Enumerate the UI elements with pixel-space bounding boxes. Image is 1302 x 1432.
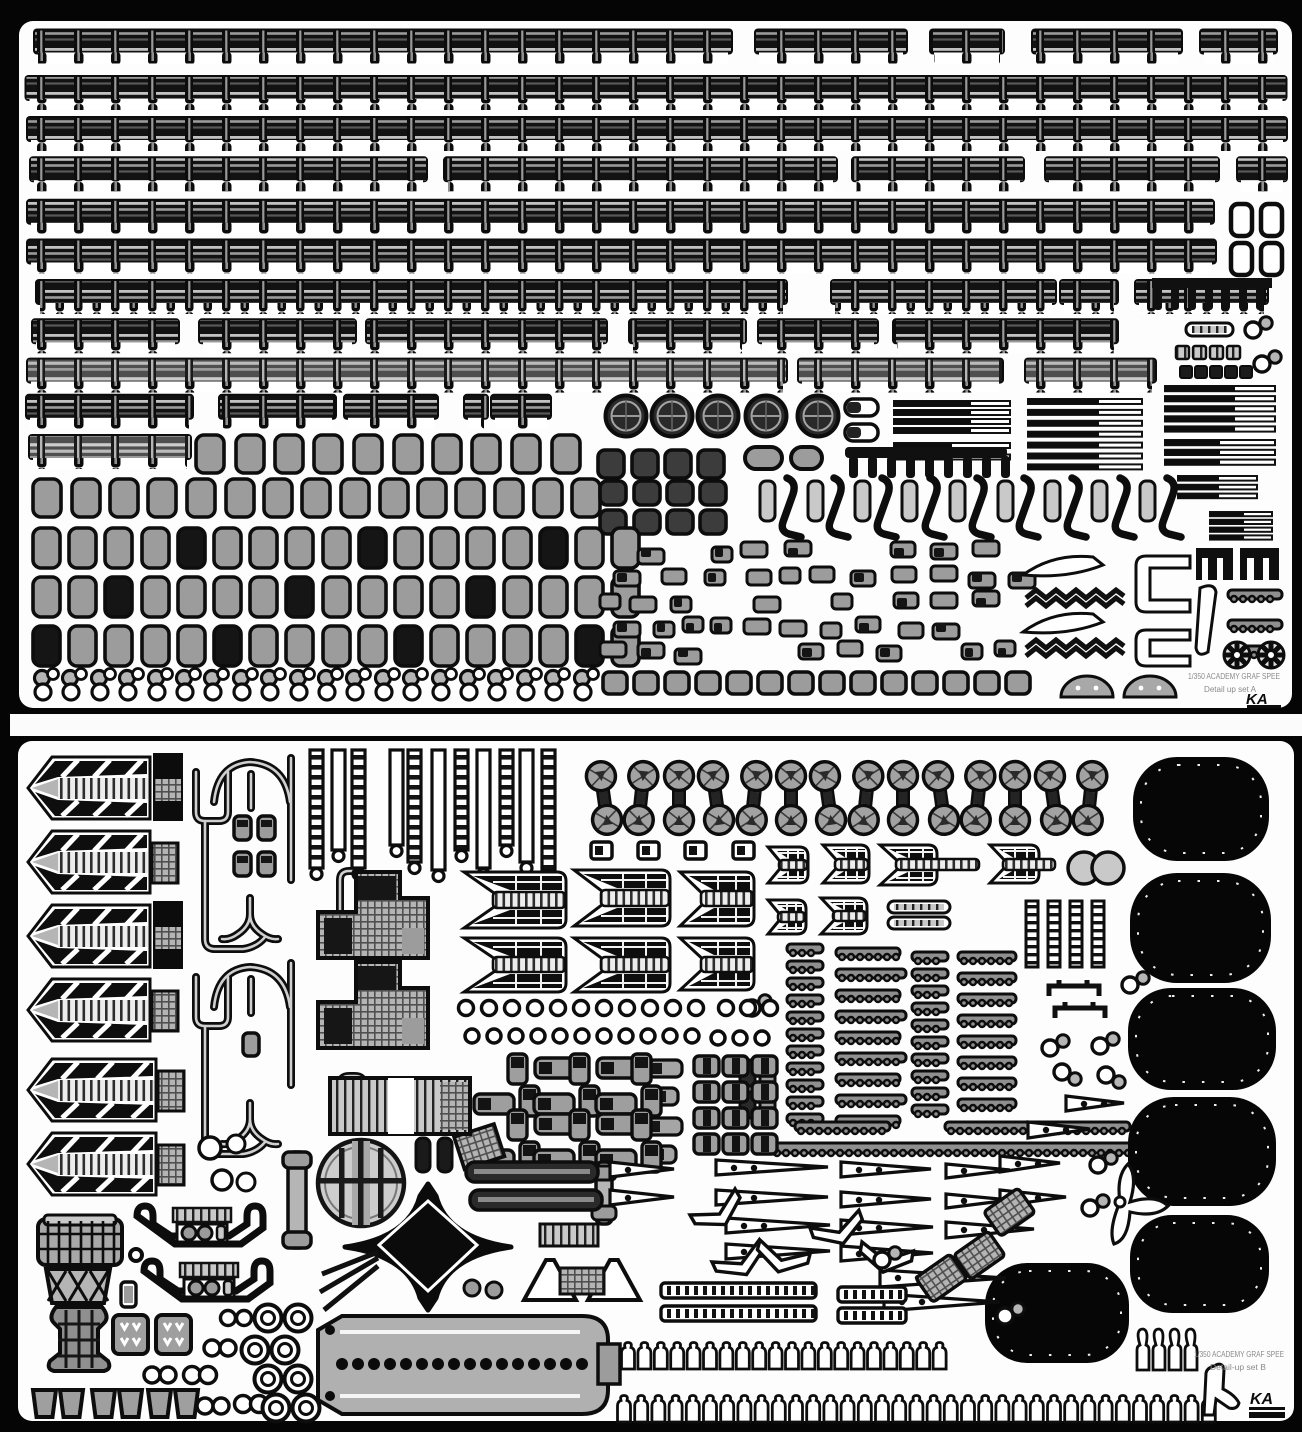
svg-text:KA: KA: [1250, 1391, 1273, 1408]
svg-text:1/350 ACADEMY GRAF SPEE: 1/350 ACADEMY GRAF SPEE: [1188, 672, 1280, 681]
svg-text:Detail-up set B: Detail-up set B: [1210, 1363, 1266, 1372]
svg-text:1/350 ACADEMY GRAF SPEE: 1/350 ACADEMY GRAF SPEE: [1194, 1350, 1284, 1359]
